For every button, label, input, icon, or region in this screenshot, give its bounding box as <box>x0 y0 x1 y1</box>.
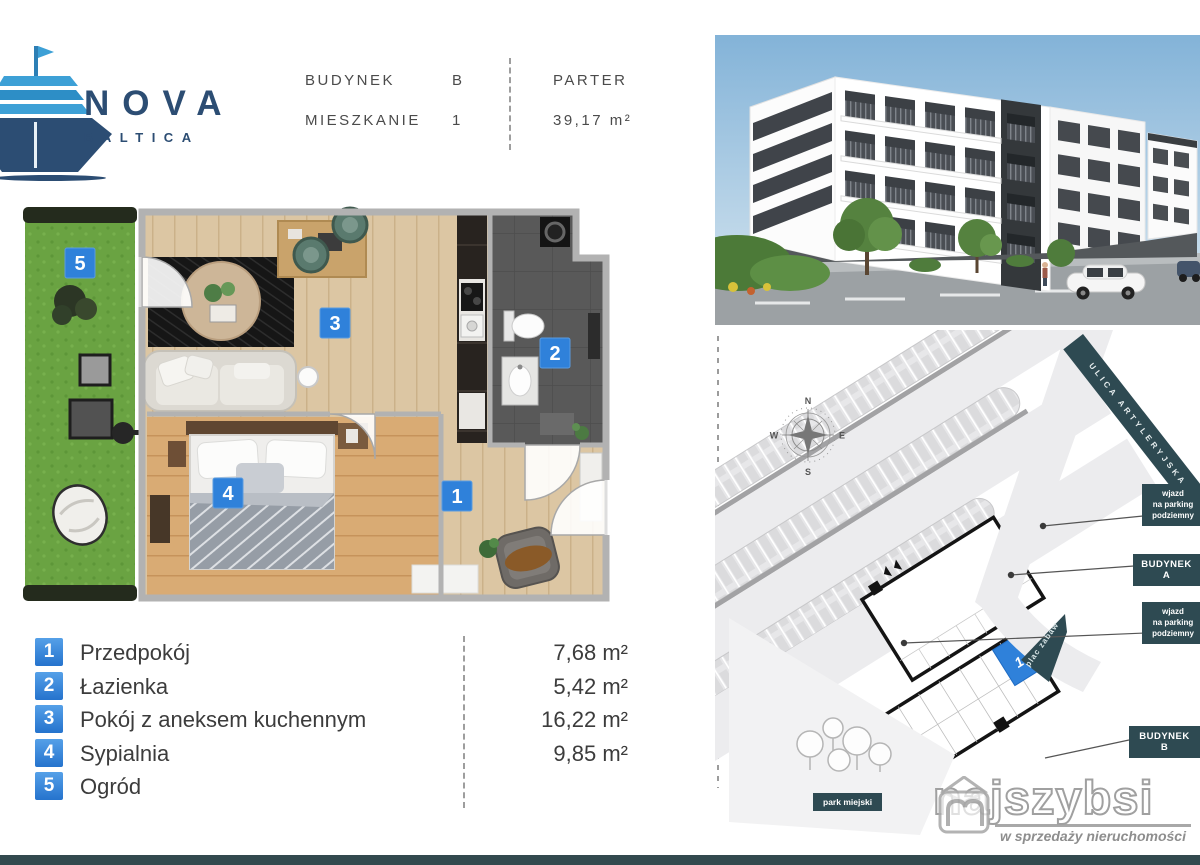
site-plan-labels: ULICA ARTYLERYJSKA wjazd na parking podz… <box>715 330 1200 860</box>
footer-bar <box>0 855 1200 865</box>
legend-badge-3: 3 <box>35 705 63 733</box>
plan-badge-1-num: 1 <box>451 486 462 508</box>
legend-row: 1 Przedpokój 7,68 m² <box>30 638 600 668</box>
side-table <box>298 367 318 387</box>
apartment-value: 1 <box>452 112 463 129</box>
legend-row: 2 Łazienka 5,42 m² <box>30 672 600 702</box>
legend-divider <box>463 636 465 808</box>
plan-badge-4-num: 4 <box>222 483 234 505</box>
brochure-page: NOVA BALTICA BUDYNEK B MIESZKANIE 1 PART… <box>0 0 1200 865</box>
building-right-wing <box>1050 107 1145 255</box>
park-label: park miejski <box>813 793 882 811</box>
parking-entry-label-2: wjazd na parking podziemny <box>1142 602 1200 644</box>
legend-row: 3 Pokój z aneksem kuchennym 16,22 m² <box>30 705 600 735</box>
sofa <box>144 351 296 411</box>
plan-badge-4: 4 <box>213 478 243 508</box>
total-area-value: 39,17 m² <box>553 112 632 129</box>
legend-name-1: Przedpokój <box>80 640 190 666</box>
agency-logo-icon <box>933 776 995 836</box>
building-value: B <box>452 72 465 89</box>
plan-badge-2-num: 2 <box>549 343 560 365</box>
apartment-label: MIESZKANIE <box>305 112 421 129</box>
brand-line1: NOVA <box>84 86 235 121</box>
far-building <box>1148 133 1197 239</box>
building-render-photo <box>715 35 1200 325</box>
building-left-face <box>750 77 835 261</box>
legend-area-1: 7,68 m² <box>470 640 628 666</box>
building-label: BUDYNEK <box>305 72 395 89</box>
legend-badge-2: 2 <box>35 672 63 700</box>
floor-plan: 1 2 3 4 5 <box>20 195 620 615</box>
legend-name-2: Łazienka <box>80 674 168 700</box>
agency-watermark: najszybsi w sprzedaży nieruchomości <box>933 776 1195 844</box>
legend-name-3: Pokój z aneksem kuchennym <box>80 707 366 733</box>
legend-area-3: 16,22 m² <box>470 707 628 733</box>
plan-badge-2: 2 <box>540 338 570 368</box>
building-a-label: BUDYNEK A <box>1133 554 1200 586</box>
plan-badge-1: 1 <box>442 481 472 511</box>
hall-mat <box>412 565 478 593</box>
building-b-label: BUDYNEK B <box>1129 726 1200 758</box>
plan-badge-3-num: 3 <box>329 313 340 335</box>
legend-name-5: Ogród <box>80 774 141 800</box>
playground-label: plac zabaw <box>1015 609 1068 680</box>
header-divider <box>509 58 511 150</box>
legend-badge-4: 4 <box>35 739 63 767</box>
legend-badge-1: 1 <box>35 638 63 666</box>
site-plan: 1 <box>715 330 1200 860</box>
plan-badge-5: 5 <box>65 248 95 278</box>
legend-area-4: 9,85 m² <box>470 741 628 767</box>
floor-value: PARTER <box>553 72 627 89</box>
legend-name-4: Sypialnia <box>80 741 169 767</box>
parking-entry-label-1: wjazd na parking podziemny <box>1142 484 1200 526</box>
brand-line2: BALTICA <box>84 130 235 145</box>
plan-badge-5-num: 5 <box>74 253 85 275</box>
brand-name: NOVA BALTICA <box>84 86 235 145</box>
kitchen-cabinets <box>457 215 487 443</box>
legend-row: 5 Ogród <box>30 772 600 802</box>
legend-badge-5: 5 <box>35 772 63 800</box>
legend-row: 4 Sypialnia 9,85 m² <box>30 739 600 769</box>
plan-badge-3: 3 <box>320 308 350 338</box>
legend-area-2: 5,42 m² <box>470 674 628 700</box>
agency-tagline: w sprzedaży nieruchomości <box>995 824 1191 844</box>
